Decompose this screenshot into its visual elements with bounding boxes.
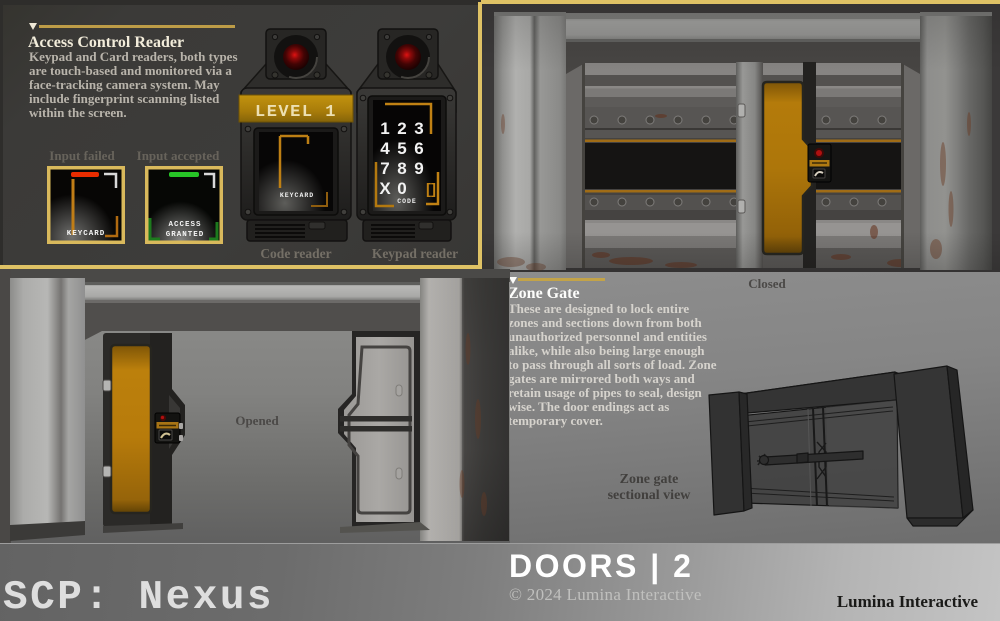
svg-text:1: 1	[380, 119, 389, 138]
svg-text:X: X	[379, 179, 391, 198]
svg-text:5: 5	[397, 139, 406, 158]
svg-text:8: 8	[397, 159, 406, 178]
svg-text:LEVEL 1: LEVEL 1	[255, 103, 337, 122]
svg-text:3: 3	[414, 119, 423, 138]
svg-text:7: 7	[380, 159, 389, 178]
svg-text:6: 6	[414, 139, 423, 158]
svg-text:0: 0	[397, 179, 406, 198]
svg-text:[]: []	[426, 181, 436, 198]
svg-text:CODE: CODE	[397, 198, 417, 205]
svg-text:2: 2	[397, 119, 406, 138]
svg-text:GRANTED: GRANTED	[166, 231, 205, 239]
svg-text:KEYCARD: KEYCARD	[67, 230, 106, 238]
svg-text:ACCESS: ACCESS	[168, 221, 201, 229]
svg-text:9: 9	[414, 159, 423, 178]
svg-text:4: 4	[380, 139, 390, 158]
svg-text:KEYCARD: KEYCARD	[280, 192, 314, 199]
